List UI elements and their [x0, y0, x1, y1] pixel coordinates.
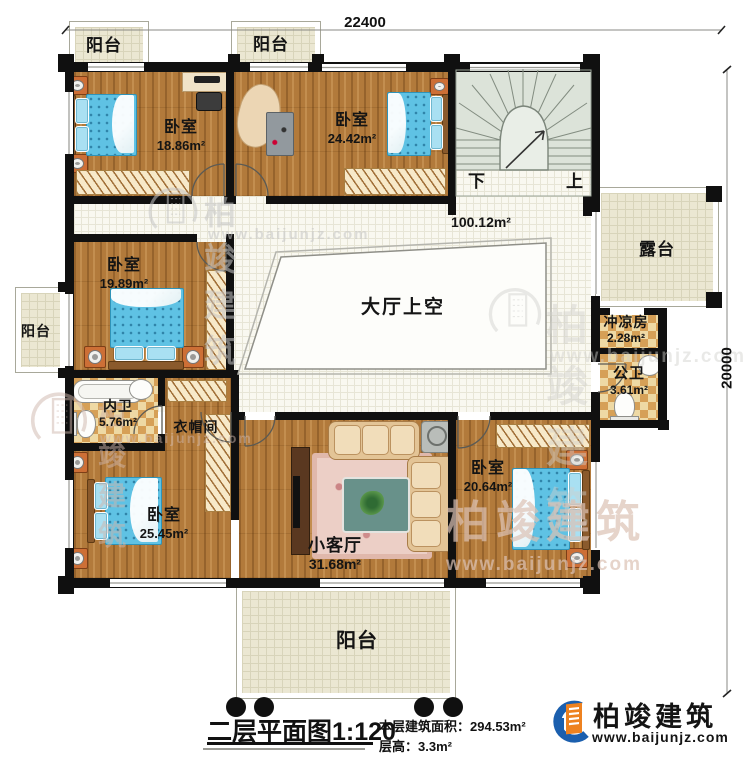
floor-area-value: 294.53m²: [470, 719, 526, 734]
brand-site: www.baijunjz.com: [592, 729, 729, 745]
stairs-up-label: 上: [566, 172, 584, 192]
floor-height-label: 层高：: [379, 739, 418, 754]
floor-area-note: 本层建筑面积：294.53m²: [379, 716, 526, 735]
room-label-cloakroom: 衣帽间: [174, 419, 219, 436]
floor-plan: 柏竣建筑 www.baijunjz.com 柏竣建筑 www.baijunjz.…: [0, 0, 750, 760]
room-label-living: 小客厅31.68m²: [308, 536, 362, 573]
hall-area-label: 100.12m²: [451, 214, 511, 231]
room-label-balcony-left: 阳台: [21, 323, 51, 340]
room-label-bedroom-bottom-left: 卧室25.45m²: [140, 507, 188, 541]
floor-area-label: 本层建筑面积：: [379, 719, 470, 734]
room-label-ensuite-wc: 内卫5.76m²: [99, 398, 137, 429]
dimension-top: 22400: [344, 14, 386, 31]
room-label-balcony-top-mid: 阳台: [253, 35, 289, 55]
room-label-bedroom-mid-left: 卧室19.89m²: [100, 257, 148, 291]
title-underline: [207, 742, 373, 745]
brand-logo: [551, 694, 589, 753]
room-label-hall-void: 大厅上空: [361, 297, 445, 319]
title-underline-2: [203, 748, 365, 750]
room-label-balcony-top-left: 阳台: [86, 36, 122, 56]
brand-logo-icon: [551, 694, 589, 748]
room-label-public-wc: 公卫3.61m²: [610, 365, 648, 397]
room-label-balcony-bottom: 阳台: [336, 630, 378, 654]
room-label-bedroom-top-mid: 卧室24.42m²: [328, 112, 376, 146]
floor-height-note: 层高：3.3m²: [379, 736, 452, 755]
room-label-bedroom-bottom-right: 卧室20.64m²: [464, 460, 512, 494]
room-label-bedroom-top-left: 卧室18.86m²: [157, 119, 205, 153]
room-label-shower: 冲凉房2.28m²: [604, 314, 649, 345]
dimension-right: 20000: [719, 347, 736, 389]
room-label-terrace: 露台: [639, 240, 675, 260]
stairs-down-label: 下: [468, 172, 486, 192]
floor-height-value: 3.3m²: [418, 739, 452, 754]
